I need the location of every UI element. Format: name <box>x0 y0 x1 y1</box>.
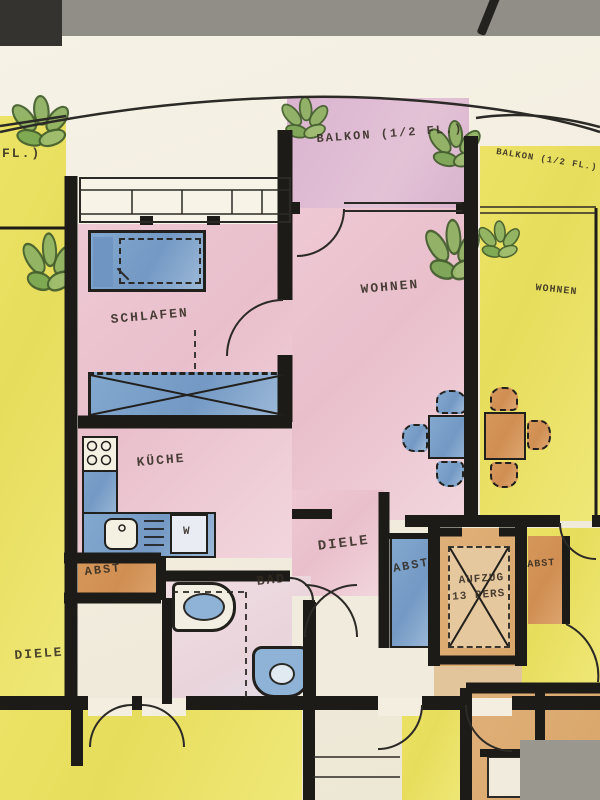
photo-corner-bottom-right <box>520 740 600 800</box>
floor-plan-photo: W <box>0 0 600 800</box>
label-balkon-left: FL.) <box>2 146 41 161</box>
floorplan-linework <box>0 0 600 800</box>
label-aufzug-line1: AUFZUG <box>458 572 504 587</box>
label-aufzug: AUFZUG 13 PERS. <box>446 569 518 606</box>
facade-arc <box>0 97 600 132</box>
label-aufzug-line2: 13 PERS. <box>452 587 514 603</box>
window-bedroom-lines <box>80 178 290 222</box>
photo-edge-top <box>0 0 600 36</box>
photo-corner-top-left <box>0 0 62 46</box>
label-abst-right: ABST <box>527 558 556 571</box>
label-bad: BAD <box>256 571 287 589</box>
walls <box>0 130 600 800</box>
stair-lines <box>313 757 400 777</box>
